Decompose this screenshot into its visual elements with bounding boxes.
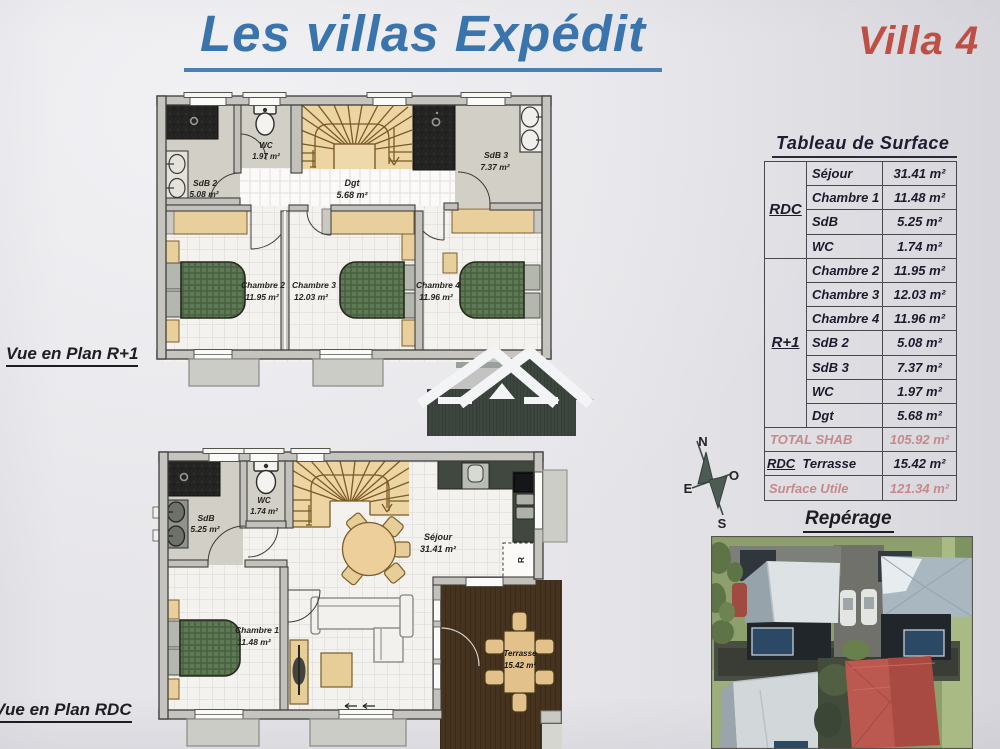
- svg-text:Chambre 1: Chambre 1: [235, 625, 279, 635]
- svg-text:O: O: [729, 468, 739, 483]
- svg-text:Chambre 2: Chambre 2: [241, 280, 285, 290]
- svg-text:Terrasse: Terrasse: [503, 649, 537, 658]
- svg-text:15.42 m²: 15.42 m²: [504, 661, 536, 670]
- svg-text:31.41 m²: 31.41 m²: [420, 544, 457, 554]
- svg-text:1.97 m²: 1.97 m²: [252, 152, 280, 161]
- svg-text:SdB: SdB: [198, 513, 215, 523]
- svg-text:WC: WC: [259, 141, 273, 150]
- svg-text:Séjour: Séjour: [424, 532, 453, 542]
- svg-text:E: E: [684, 481, 693, 496]
- svg-text:N: N: [698, 434, 707, 449]
- svg-text:11.95 m²: 11.95 m²: [245, 292, 280, 302]
- svg-text:Dgt: Dgt: [345, 178, 361, 188]
- svg-text:5.25 m²: 5.25 m²: [190, 524, 220, 534]
- svg-text:S: S: [718, 516, 727, 531]
- svg-text:Chambre 4: Chambre 4: [416, 280, 460, 290]
- svg-text:11.96 m²: 11.96 m²: [419, 292, 454, 302]
- svg-text:Chambre 3: Chambre 3: [292, 280, 336, 290]
- svg-text:5.68 m²: 5.68 m²: [336, 190, 368, 200]
- svg-text:7.37 m²: 7.37 m²: [480, 162, 510, 172]
- svg-text:12.03 m²: 12.03 m²: [294, 292, 329, 302]
- svg-text:SdB 2: SdB 2: [193, 178, 217, 188]
- svg-text:WC: WC: [257, 496, 271, 505]
- svg-text:SdB 3: SdB 3: [484, 150, 508, 160]
- svg-text:5.08 m²: 5.08 m²: [189, 189, 219, 199]
- svg-text:R: R: [516, 557, 526, 563]
- svg-text:1.74 m²: 1.74 m²: [250, 507, 278, 516]
- svg-text:11.48 m²: 11.48 m²: [237, 637, 272, 647]
